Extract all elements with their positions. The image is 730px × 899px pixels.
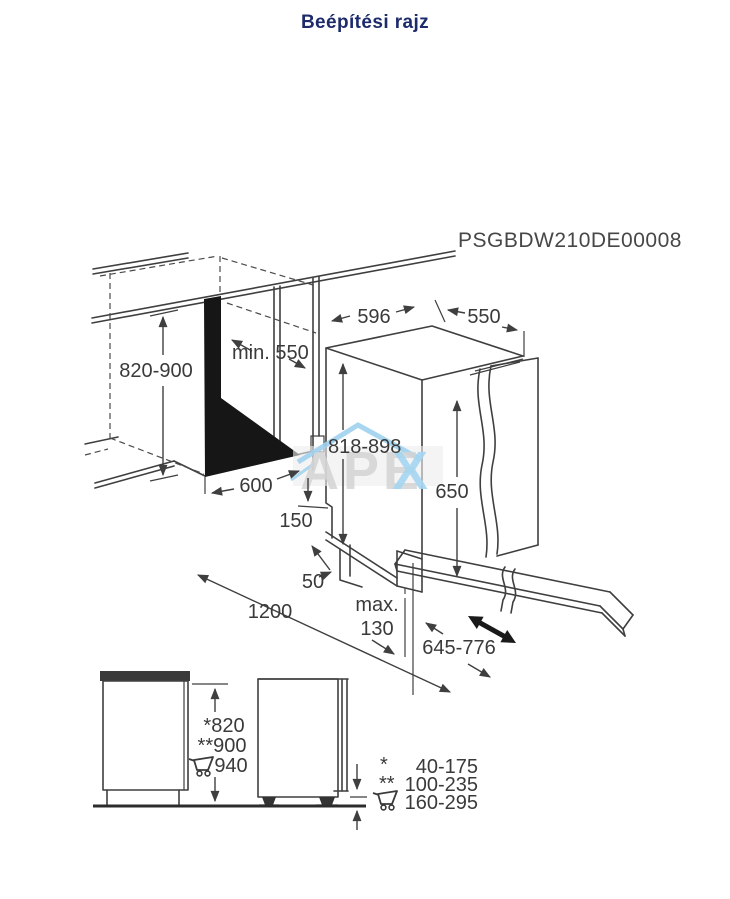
height-mark-2: **900	[198, 735, 247, 757]
dim-front-clearance: 1200	[248, 601, 293, 623]
dim-niche-width: 600	[239, 475, 272, 497]
furniture-door-panel	[478, 358, 538, 557]
dim-appliance-depth: 550	[467, 306, 500, 328]
dim-appliance-height: 818-898	[328, 436, 401, 458]
dim-plinth-max-value: 130	[360, 618, 393, 640]
dim-niche-height: 820-900	[119, 360, 192, 382]
legend-range-cart: 160-295	[405, 792, 478, 814]
height-mark-3: 940	[214, 755, 247, 777]
dim-door-open-reach: 645-776	[422, 637, 495, 659]
installation-drawing-page: Beépítési rajz PSGBDW210DE00008	[0, 0, 730, 899]
page-title: Beépítési rajz	[0, 12, 730, 34]
legend: * 40-175 ** 100-235 160-295	[373, 754, 478, 814]
side-view-height-dimension: *820 **900 940	[189, 684, 248, 801]
cart-icon	[189, 757, 213, 776]
installation-drawing: PSGBDW210DE00008	[0, 0, 730, 899]
dim-plinth-recess: 50	[302, 571, 324, 593]
dim-niche-depth: min. 550	[232, 342, 309, 364]
dim-door-panel-height: 650	[435, 481, 468, 503]
side-view-plinth-unit	[100, 671, 190, 805]
dim-plinth-height: 150	[279, 510, 312, 532]
dim-plinth-max-label: max.	[355, 594, 398, 616]
height-mark-1: *820	[203, 715, 244, 737]
dim-appliance-width: 596	[357, 306, 390, 328]
product-code: PSGBDW210DE00008	[458, 229, 682, 252]
side-views: *820 **900 940	[93, 671, 367, 830]
